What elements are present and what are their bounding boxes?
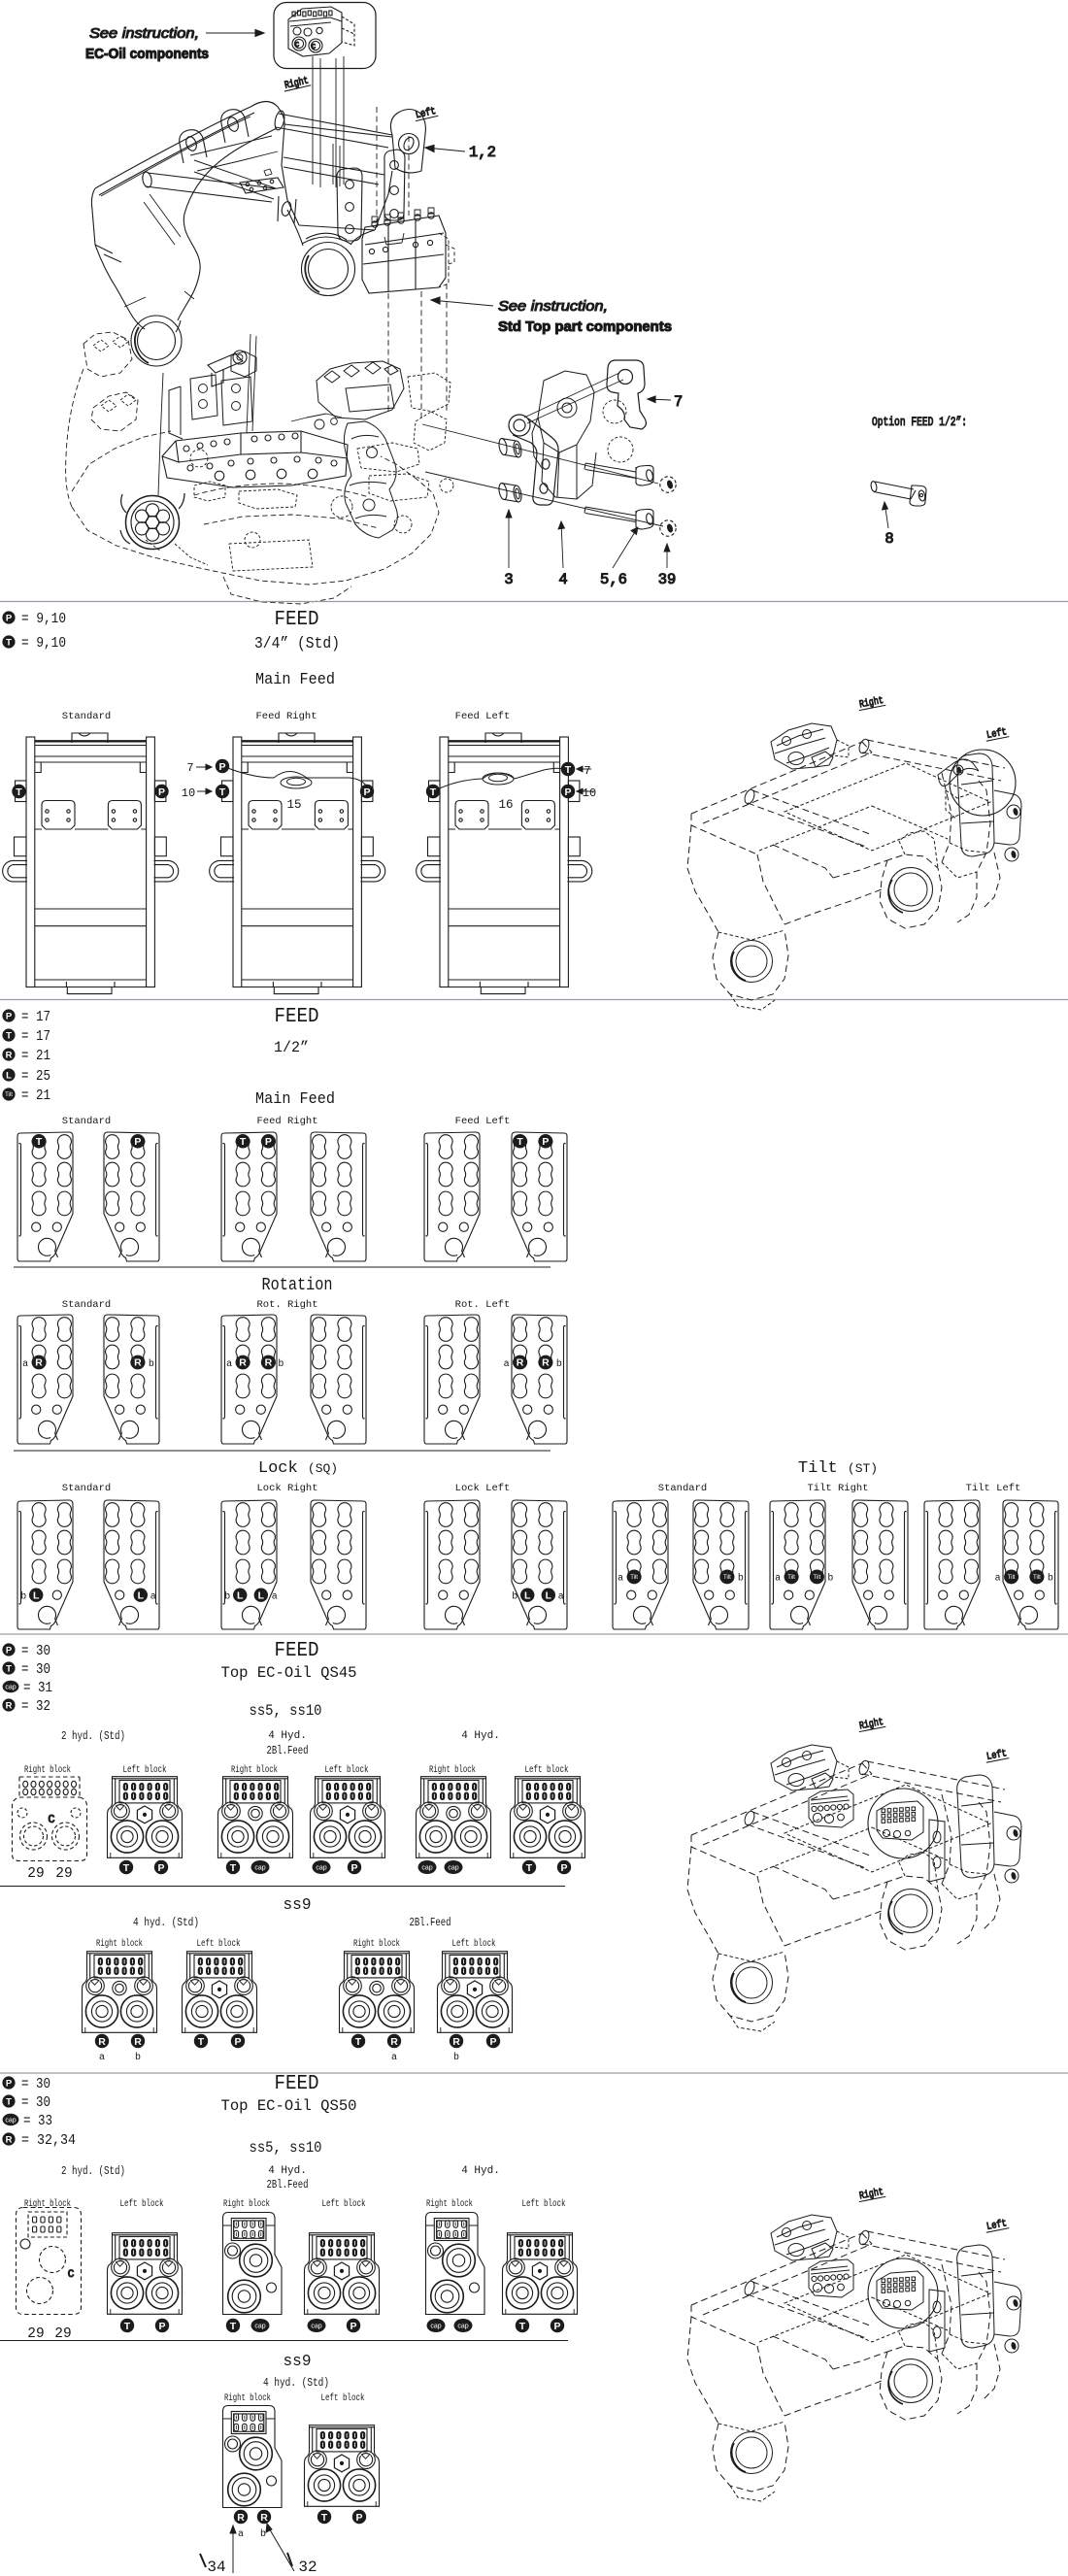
svg-text:cap: cap bbox=[316, 1864, 326, 1871]
svg-text:cap: cap bbox=[5, 1684, 16, 1690]
svg-text:7: 7 bbox=[186, 761, 193, 775]
svg-text:cap: cap bbox=[5, 2117, 16, 2124]
svg-text:2Bl.Feed: 2Bl.Feed bbox=[267, 2179, 309, 2191]
svg-text:R: R bbox=[35, 1357, 43, 1369]
svg-text:Right: Right bbox=[858, 695, 884, 712]
svg-text:a: a bbox=[775, 1574, 781, 1585]
svg-text:b: b bbox=[556, 1358, 562, 1370]
svg-text:P: P bbox=[134, 1136, 141, 1148]
svg-text:R: R bbox=[134, 1357, 142, 1369]
svg-text:T: T bbox=[16, 786, 22, 798]
svg-text:P: P bbox=[560, 1862, 567, 1874]
svg-text:P: P bbox=[6, 1011, 13, 1021]
svg-text:= 30: = 30 bbox=[21, 2076, 50, 2092]
svg-text:T: T bbox=[230, 2321, 237, 2332]
svg-text:Right block: Right block bbox=[223, 2198, 270, 2210]
svg-text:Lock Left: Lock Left bbox=[455, 1483, 511, 1494]
svg-text:Main Feed: Main Feed bbox=[255, 1089, 335, 1108]
svg-text:2Bl.Feed: 2Bl.Feed bbox=[410, 1917, 451, 1929]
svg-text:C: C bbox=[295, 42, 299, 50]
svg-text:P: P bbox=[6, 613, 13, 623]
svg-text:P: P bbox=[265, 1136, 272, 1148]
svg-text:4: 4 bbox=[558, 571, 567, 588]
svg-text:= 30: = 30 bbox=[21, 2094, 50, 2111]
svg-text:Right block: Right block bbox=[24, 2198, 71, 2210]
svg-text:L: L bbox=[138, 1589, 145, 1601]
svg-text:cap: cap bbox=[457, 2323, 468, 2329]
svg-text:39: 39 bbox=[658, 571, 677, 588]
svg-text:= 30: = 30 bbox=[21, 1661, 50, 1678]
svg-text:Right block: Right block bbox=[353, 1938, 400, 1950]
svg-text:R: R bbox=[6, 1050, 13, 1060]
svg-text:Rot. Left: Rot. Left bbox=[455, 1299, 511, 1311]
svg-text:Tilt: Tilt bbox=[814, 1575, 821, 1581]
svg-text:P: P bbox=[218, 761, 225, 773]
svg-text:L: L bbox=[524, 1589, 531, 1601]
svg-text:Left block: Left block bbox=[120, 2198, 164, 2210]
svg-text:T: T bbox=[230, 1862, 237, 1874]
svg-text:b: b bbox=[224, 1591, 230, 1603]
svg-text:a: a bbox=[226, 1359, 232, 1370]
svg-text:T: T bbox=[517, 1136, 523, 1148]
svg-text:R: R bbox=[260, 2512, 268, 2524]
svg-text:a: a bbox=[150, 1592, 156, 1603]
svg-text:Tilt: Tilt bbox=[787, 1575, 795, 1581]
svg-text:R: R bbox=[98, 2036, 106, 2048]
svg-text:R: R bbox=[542, 1357, 550, 1369]
svg-text:= 17: = 17 bbox=[21, 1028, 50, 1045]
svg-text:7: 7 bbox=[674, 393, 683, 411]
svg-text:16: 16 bbox=[498, 798, 513, 812]
svg-text:T: T bbox=[526, 1862, 533, 1874]
svg-text:a: a bbox=[995, 1574, 1001, 1585]
svg-text:L: L bbox=[33, 1589, 40, 1601]
svg-text:ss5, ss10: ss5, ss10 bbox=[250, 1702, 322, 1720]
svg-text:4 Hyd.: 4 Hyd. bbox=[268, 2165, 307, 2177]
svg-text:Right: Right bbox=[284, 75, 310, 91]
svg-text:32: 32 bbox=[298, 2559, 317, 2576]
svg-text:Left block: Left block bbox=[197, 1938, 241, 1950]
svg-text:Right block: Right block bbox=[429, 1764, 476, 1776]
svg-text:b: b bbox=[260, 2528, 266, 2540]
svg-text:Left: Left bbox=[415, 106, 437, 121]
svg-text:Left block: Left block bbox=[452, 1938, 496, 1950]
svg-text:34: 34 bbox=[207, 2559, 225, 2576]
svg-text:FEED: FEED bbox=[275, 1640, 319, 1662]
svg-text:cap: cap bbox=[421, 1864, 432, 1871]
svg-text:4 hyd. (Std): 4 hyd. (Std) bbox=[133, 1917, 199, 1929]
svg-text:L: L bbox=[258, 1589, 265, 1601]
svg-text:= 9,10: = 9,10 bbox=[21, 611, 66, 627]
svg-text:P: P bbox=[234, 2036, 241, 2048]
svg-text:Left block: Left block bbox=[522, 2198, 566, 2210]
svg-text:P: P bbox=[355, 2512, 362, 2524]
svg-text:T: T bbox=[519, 2321, 526, 2332]
svg-text:L: L bbox=[237, 1589, 244, 1601]
svg-text:= 17: = 17 bbox=[21, 1009, 50, 1025]
svg-text:P: P bbox=[350, 2321, 356, 2332]
svg-text:b: b bbox=[827, 1573, 833, 1585]
svg-text:T: T bbox=[6, 1030, 12, 1041]
svg-text:b: b bbox=[1048, 1573, 1053, 1585]
svg-text:T: T bbox=[240, 1136, 247, 1148]
svg-text:P: P bbox=[553, 2321, 560, 2332]
svg-text:Standard: Standard bbox=[658, 1483, 707, 1494]
svg-text:Std Top part components: Std Top part components bbox=[498, 318, 672, 335]
svg-text:b: b bbox=[453, 2052, 459, 2063]
svg-text:R: R bbox=[390, 2036, 398, 2048]
svg-text:Right block: Right block bbox=[224, 2392, 271, 2404]
svg-text:Right: Right bbox=[858, 1717, 884, 1733]
svg-text:Left block: Left block bbox=[123, 1764, 167, 1776]
svg-text:L: L bbox=[546, 1589, 552, 1601]
svg-text:= 21: = 21 bbox=[21, 1087, 50, 1104]
svg-text:Right block: Right block bbox=[426, 2198, 473, 2210]
svg-text:= 32,34: = 32,34 bbox=[21, 2132, 76, 2149]
svg-text:T: T bbox=[321, 2512, 328, 2524]
svg-text:T: T bbox=[355, 2036, 362, 2048]
svg-text:2 hyd. (Std): 2 hyd. (Std) bbox=[61, 1730, 125, 1743]
svg-text:= 21: = 21 bbox=[21, 1048, 50, 1064]
svg-text:P: P bbox=[158, 2321, 165, 2332]
svg-text:= 30: = 30 bbox=[21, 1643, 50, 1659]
svg-text:4 hyd. (Std): 4 hyd. (Std) bbox=[263, 2377, 329, 2390]
svg-text:T: T bbox=[123, 1862, 130, 1874]
svg-text:Option FEED 1/2”:: Option FEED 1/2”: bbox=[872, 415, 967, 429]
svg-text:Left block: Left block bbox=[321, 2392, 365, 2404]
svg-text:L: L bbox=[6, 1070, 12, 1081]
svg-text:R: R bbox=[452, 2036, 460, 2048]
svg-text:R: R bbox=[237, 2512, 245, 2524]
svg-text:Lock (SQ): Lock (SQ) bbox=[258, 1459, 338, 1478]
svg-text:b: b bbox=[738, 1573, 744, 1585]
svg-text:a: a bbox=[99, 2053, 105, 2063]
svg-text:Feed Right: Feed Right bbox=[256, 1116, 317, 1127]
svg-text:Top EC-Oil QS45: Top EC-Oil QS45 bbox=[221, 1664, 357, 1682]
svg-text:= 31: = 31 bbox=[23, 1680, 52, 1696]
svg-text:a: a bbox=[272, 1592, 278, 1603]
svg-text:b: b bbox=[135, 2052, 141, 2063]
svg-text:C: C bbox=[312, 44, 316, 51]
svg-text:T: T bbox=[124, 2321, 131, 2332]
svg-text:2 hyd. (Std): 2 hyd. (Std) bbox=[61, 2165, 125, 2178]
svg-text:a: a bbox=[504, 1359, 510, 1370]
svg-text:P: P bbox=[350, 1862, 357, 1874]
svg-text:Standard: Standard bbox=[62, 711, 111, 722]
svg-text:Rotation: Rotation bbox=[262, 1275, 333, 1295]
svg-text:Right: Right bbox=[858, 2187, 884, 2203]
svg-text:T: T bbox=[430, 786, 437, 798]
svg-text:See instruction,: See instruction, bbox=[498, 298, 608, 315]
svg-text:29: 29 bbox=[27, 2326, 44, 2342]
svg-text:Tilt: Tilt bbox=[630, 1575, 638, 1581]
svg-text:2Bl.Feed: 2Bl.Feed bbox=[267, 1745, 309, 1757]
svg-text:3: 3 bbox=[504, 571, 513, 588]
svg-text:= 33: = 33 bbox=[23, 2113, 52, 2129]
svg-text:= 9,10: = 9,10 bbox=[21, 635, 66, 652]
svg-text:FEED: FEED bbox=[275, 2073, 319, 2095]
svg-text:Standard: Standard bbox=[62, 1299, 111, 1311]
svg-text:Right block: Right block bbox=[96, 1938, 143, 1950]
svg-text:4 Hyd.: 4 Hyd. bbox=[461, 1730, 500, 1742]
svg-text:8: 8 bbox=[884, 530, 893, 548]
svg-text:Left block: Left block bbox=[525, 1764, 569, 1776]
svg-text:cap: cap bbox=[254, 2323, 265, 2329]
svg-text:b: b bbox=[20, 1591, 26, 1603]
svg-text:b: b bbox=[512, 1591, 517, 1603]
svg-text:= 32: = 32 bbox=[21, 1698, 50, 1715]
svg-text:10: 10 bbox=[583, 786, 596, 800]
svg-text:10: 10 bbox=[182, 786, 195, 800]
svg-text:P: P bbox=[489, 2036, 496, 2048]
svg-text:Left block: Left block bbox=[325, 1764, 369, 1776]
svg-text:EC-Oil components: EC-Oil components bbox=[85, 46, 209, 62]
svg-text:Right block: Right block bbox=[231, 1764, 278, 1776]
svg-text:cap: cap bbox=[254, 1864, 265, 1871]
svg-text:P: P bbox=[542, 1136, 549, 1148]
svg-text:T: T bbox=[36, 1136, 43, 1148]
svg-text:29: 29 bbox=[54, 2326, 71, 2342]
svg-text:a: a bbox=[238, 2529, 244, 2540]
svg-text:T: T bbox=[6, 637, 12, 648]
svg-text:a: a bbox=[617, 1574, 623, 1585]
svg-text:Left block: Left block bbox=[322, 2198, 366, 2210]
svg-text:= 25: = 25 bbox=[21, 1068, 50, 1085]
svg-text:7: 7 bbox=[584, 764, 590, 778]
svg-text:T: T bbox=[565, 764, 572, 776]
svg-text:Feed Left: Feed Left bbox=[455, 1116, 511, 1127]
svg-text:4 Hyd.: 4 Hyd. bbox=[461, 2165, 500, 2177]
svg-text:Lock Right: Lock Right bbox=[256, 1483, 317, 1494]
svg-text:4 Hyd.: 4 Hyd. bbox=[268, 1730, 307, 1742]
svg-text:P: P bbox=[6, 1645, 13, 1656]
svg-text:1,2: 1,2 bbox=[469, 144, 496, 161]
svg-text:P: P bbox=[363, 786, 370, 798]
svg-text:b: b bbox=[149, 1358, 154, 1370]
svg-text:R: R bbox=[239, 1357, 247, 1369]
svg-text:R: R bbox=[517, 1357, 524, 1369]
svg-text:See instruction,: See instruction, bbox=[89, 25, 199, 42]
svg-text:5,6: 5,6 bbox=[600, 571, 627, 588]
svg-text:b: b bbox=[278, 1358, 284, 1370]
svg-text:R: R bbox=[134, 2036, 142, 2048]
svg-text:Standard: Standard bbox=[62, 1116, 111, 1127]
svg-text:Feed Left: Feed Left bbox=[455, 711, 511, 722]
svg-text:R: R bbox=[6, 1700, 13, 1711]
svg-text:cap: cap bbox=[448, 1864, 458, 1871]
svg-text:1/2”: 1/2” bbox=[274, 1039, 309, 1056]
svg-text:Top EC-Oil QS50: Top EC-Oil QS50 bbox=[221, 2097, 357, 2115]
svg-text:29: 29 bbox=[55, 1866, 72, 1882]
svg-text:Tilt: Tilt bbox=[1008, 1575, 1016, 1581]
svg-text:R: R bbox=[265, 1357, 273, 1369]
svg-text:T: T bbox=[6, 1663, 12, 1674]
svg-text:Standard: Standard bbox=[62, 1483, 111, 1494]
svg-text:ss9: ss9 bbox=[284, 2353, 312, 2371]
svg-text:Feed Right: Feed Right bbox=[255, 711, 317, 722]
svg-text:R: R bbox=[6, 2134, 13, 2145]
svg-text:cap: cap bbox=[430, 2323, 441, 2329]
svg-text:ss9: ss9 bbox=[284, 1896, 312, 1915]
svg-text:P: P bbox=[564, 786, 571, 798]
svg-text:P: P bbox=[158, 786, 165, 798]
svg-text:a: a bbox=[558, 1592, 564, 1603]
svg-text:T: T bbox=[198, 2036, 205, 2048]
svg-text:T: T bbox=[6, 2096, 12, 2107]
svg-text:3/4” (Std): 3/4” (Std) bbox=[254, 634, 340, 652]
svg-text:Tilt: Tilt bbox=[1033, 1575, 1041, 1581]
svg-text:P: P bbox=[157, 1862, 164, 1874]
svg-text:15: 15 bbox=[286, 798, 301, 812]
svg-text:Tilt: Tilt bbox=[5, 1092, 13, 1098]
svg-text:Main Feed: Main Feed bbox=[255, 670, 335, 688]
svg-text:Rot. Right: Rot. Right bbox=[256, 1299, 317, 1311]
svg-text:FEED: FEED bbox=[275, 609, 319, 631]
svg-text:a: a bbox=[22, 1359, 28, 1370]
svg-text:Tilt: Tilt bbox=[723, 1575, 731, 1581]
svg-text:ss5, ss10: ss5, ss10 bbox=[250, 2139, 322, 2157]
svg-text:cap: cap bbox=[311, 2323, 321, 2329]
svg-text:Tilt Left: Tilt Left bbox=[966, 1483, 1021, 1494]
svg-text:Tilt Right: Tilt Right bbox=[807, 1483, 868, 1494]
svg-text:Tilt (ST): Tilt (ST) bbox=[798, 1459, 878, 1478]
svg-text:T: T bbox=[219, 786, 226, 798]
svg-text:29: 29 bbox=[27, 1866, 44, 1882]
svg-text:Right block: Right block bbox=[24, 1764, 71, 1776]
svg-text:FEED: FEED bbox=[275, 1006, 319, 1028]
svg-text:a: a bbox=[391, 2053, 397, 2063]
svg-text:P: P bbox=[6, 2078, 13, 2089]
